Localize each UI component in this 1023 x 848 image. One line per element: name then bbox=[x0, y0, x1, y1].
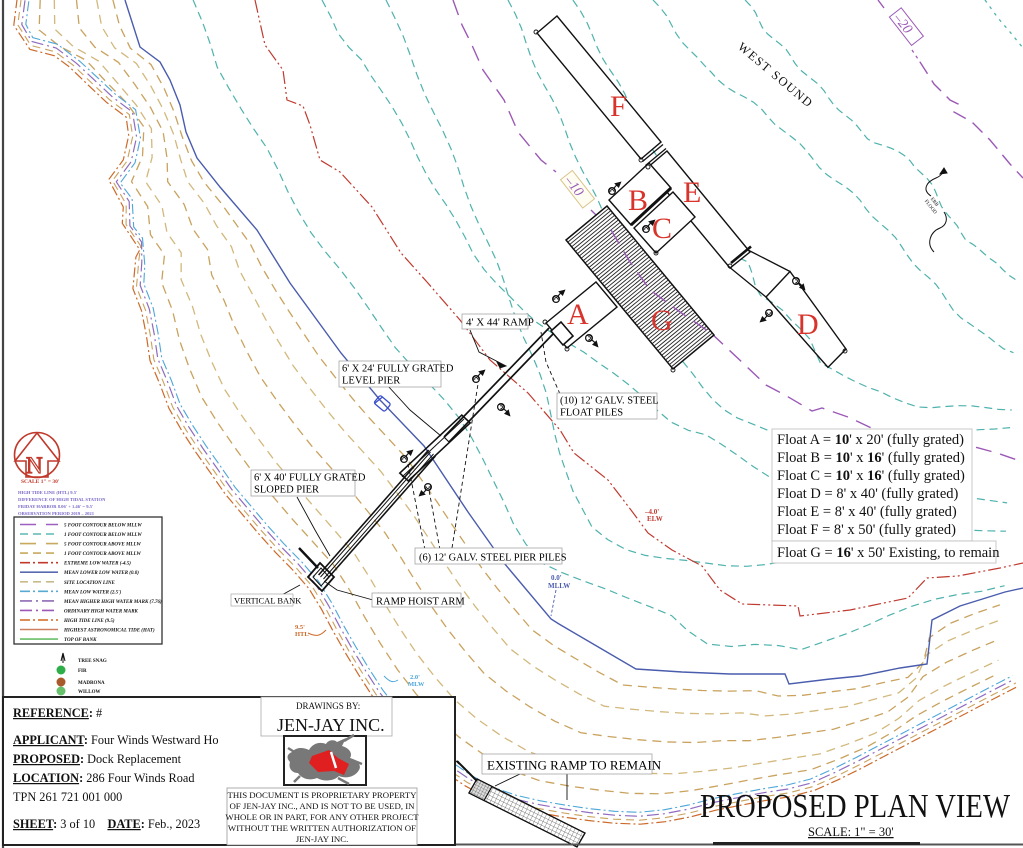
svg-text:WILLOW: WILLOW bbox=[78, 690, 101, 695]
svg-text:1 FOOT CONTOUR ABOVE MLLW: 1 FOOT CONTOUR ABOVE MLLW bbox=[64, 552, 141, 557]
svg-text:5 FOOT CONTOUR ABOVE MLLW: 5 FOOT CONTOUR ABOVE MLLW bbox=[64, 543, 141, 548]
svg-text:Float C = 10' x 16' (fully gra: Float C = 10' x 16' (fully grated) bbox=[777, 468, 965, 484]
svg-text:G: G bbox=[651, 304, 673, 337]
svg-text:Float A = 10' x 20' (fully gra: Float A = 10' x 20' (fully grated) bbox=[777, 432, 964, 448]
svg-text:6' X 24' FULLY GRATED: 6' X 24' FULLY GRATED bbox=[342, 364, 454, 375]
svg-text:B: B bbox=[628, 184, 648, 217]
svg-text:(6) 12' GALV. STEEL PIER PILES: (6) 12' GALV. STEEL PIER PILES bbox=[419, 553, 567, 564]
svg-text:ELW: ELW bbox=[647, 515, 663, 523]
svg-text:N: N bbox=[26, 453, 43, 478]
svg-text:JEN-JAY INC.: JEN-JAY INC. bbox=[277, 715, 385, 735]
svg-text:LOCATION: 286 Four Winds Road: LOCATION: 286 Four Winds Road bbox=[13, 771, 195, 785]
svg-text:5 FOOT CONTOUR BELOW MLLW: 5 FOOT CONTOUR BELOW MLLW bbox=[64, 524, 142, 529]
svg-text:JEN-JAY INC.: JEN-JAY INC. bbox=[296, 834, 349, 844]
svg-text:A: A bbox=[567, 298, 589, 331]
svg-text:0.0': 0.0' bbox=[551, 574, 562, 582]
svg-text:WITHOUT THE WRITTEN AUTHORIZAT: WITHOUT THE WRITTEN AUTHORIZATION OF bbox=[228, 823, 416, 833]
svg-text:HTL: HTL bbox=[295, 631, 309, 638]
svg-text:EXTREME LOW WATER (-4.5): EXTREME LOW WATER (-4.5) bbox=[63, 562, 131, 567]
svg-text:FLOAT PILES: FLOAT PILES bbox=[560, 408, 623, 419]
svg-text:PROPOSED: Dock Replacement: PROPOSED: Dock Replacement bbox=[13, 752, 182, 766]
svg-text:LEVEL PIER: LEVEL PIER bbox=[342, 376, 400, 387]
svg-text:1 FOOT CONTOUR BELOW MLLW: 1 FOOT CONTOUR BELOW MLLW bbox=[64, 533, 142, 538]
svg-text:HIGH TIDE LINE (9.5): HIGH TIDE LINE (9.5) bbox=[63, 619, 115, 624]
svg-text:SLOPED PIER: SLOPED PIER bbox=[254, 485, 319, 496]
svg-text:MADRONA: MADRONA bbox=[78, 681, 105, 686]
svg-text:WHOLE OR IN PART, FOR ANY OTHE: WHOLE OR IN PART, FOR ANY OTHER PROJECT bbox=[225, 812, 419, 822]
svg-text:OBSERVATION PERIOD 2019 – 2021: OBSERVATION PERIOD 2019 – 2021 bbox=[18, 511, 95, 516]
svg-text:HIGHEST ASTRONOMICAL TIDE (HAT: HIGHEST ASTRONOMICAL TIDE (HAT) bbox=[63, 629, 155, 634]
svg-text:SCALE: 1" = 30': SCALE: 1" = 30' bbox=[808, 825, 894, 839]
svg-text:Float D = 8' x 40' (fully grat: Float D = 8' x 40' (fully grated) bbox=[777, 486, 958, 502]
svg-text:DIFFERENCE OF HIGH TIDAL STATI: DIFFERENCE OF HIGH TIDAL STATION bbox=[18, 497, 106, 502]
svg-text:C: C bbox=[652, 212, 672, 245]
svg-text:PROPOSED PLAN VIEW: PROPOSED PLAN VIEW bbox=[700, 788, 1010, 825]
svg-text:FRIDAY HARBOR 8.06' + 1.46' =: FRIDAY HARBOR 8.06' + 1.46' = 9.5' bbox=[18, 504, 93, 509]
svg-text:Float F = 8' x 50' (fully grat: Float F = 8' x 50' (fully grated) bbox=[777, 522, 956, 538]
svg-text:DRAWINGS BY:: DRAWINGS BY: bbox=[296, 701, 360, 711]
svg-text:MEAN HIGHER HIGH WATER MARK (7: MEAN HIGHER HIGH WATER MARK (7.76) bbox=[63, 600, 162, 605]
svg-text:9.5': 9.5' bbox=[295, 624, 305, 631]
svg-text:D: D bbox=[797, 308, 819, 341]
svg-text:MEAN LOW WATER (2.5'): MEAN LOW WATER (2.5') bbox=[63, 590, 122, 595]
svg-text:MLW: MLW bbox=[408, 681, 425, 688]
svg-text:APPLICANT: Four Winds Westwar: APPLICANT: Four Winds Westward Ho bbox=[13, 733, 219, 747]
svg-text:Float B = 10' x 16' (fully gra: Float B = 10' x 16' (fully grated) bbox=[777, 450, 965, 466]
svg-text:Float E = 8' x 40' (fully grat: Float E = 8' x 40' (fully grated) bbox=[777, 504, 957, 520]
svg-text:MLLW: MLLW bbox=[548, 582, 570, 590]
svg-text:4' X 44' RAMP: 4' X 44' RAMP bbox=[466, 317, 534, 329]
svg-text:TOP OF BANK: TOP OF BANK bbox=[64, 638, 97, 643]
svg-text:THIS DOCUMENT IS PROPRIETARY P: THIS DOCUMENT IS PROPRIETARY PROPERTY bbox=[228, 790, 418, 800]
svg-text:SHEET: 3 of 10 DATE: Feb.,: SHEET: 3 of 10 DATE: Feb., 2023 bbox=[13, 817, 200, 831]
svg-text:SITE LOCATION LINE: SITE LOCATION LINE bbox=[64, 581, 116, 586]
svg-text:(10) 12' GALV. STEEL: (10) 12' GALV. STEEL bbox=[560, 396, 659, 407]
svg-text:SCALE 1" = 30': SCALE 1" = 30' bbox=[21, 479, 60, 485]
svg-text:Float G = 16' x 50' Existing,: Float G = 16' x 50' Existing, to remain bbox=[777, 545, 1000, 561]
svg-text:REFERENCE: #: REFERENCE: # bbox=[13, 706, 102, 720]
svg-text:FIR: FIR bbox=[78, 669, 87, 674]
svg-text:ORDINARY HIGH WATER MARK: ORDINARY HIGH WATER MARK bbox=[64, 609, 139, 614]
svg-text:EXISTING RAMP TO REMAIN: EXISTING RAMP TO REMAIN bbox=[487, 758, 662, 773]
svg-text:OF JEN-JAY INC., AND IS NOT TO: OF JEN-JAY INC., AND IS NOT TO BE USED, … bbox=[229, 801, 415, 811]
svg-text:TPN 261 721 001 000: TPN 261 721 001 000 bbox=[13, 790, 122, 804]
svg-text:TREE SNAG: TREE SNAG bbox=[78, 659, 107, 664]
svg-text:VERTICAL BANK: VERTICAL BANK bbox=[234, 596, 302, 606]
svg-text:HIGH TIDE LINE (HTL) 9.5': HIGH TIDE LINE (HTL) 9.5' bbox=[18, 490, 77, 495]
svg-text:E: E bbox=[683, 176, 701, 209]
svg-text:F: F bbox=[610, 90, 627, 123]
svg-text:MEAN LOWER LOW WATER (0.0): MEAN LOWER LOW WATER (0.0) bbox=[63, 571, 139, 576]
svg-text:6' X 40' FULLY GRATED: 6' X 40' FULLY GRATED bbox=[254, 473, 366, 484]
svg-text:RAMP HOIST ARM: RAMP HOIST ARM bbox=[376, 597, 465, 608]
svg-text:2.0': 2.0' bbox=[410, 674, 420, 681]
